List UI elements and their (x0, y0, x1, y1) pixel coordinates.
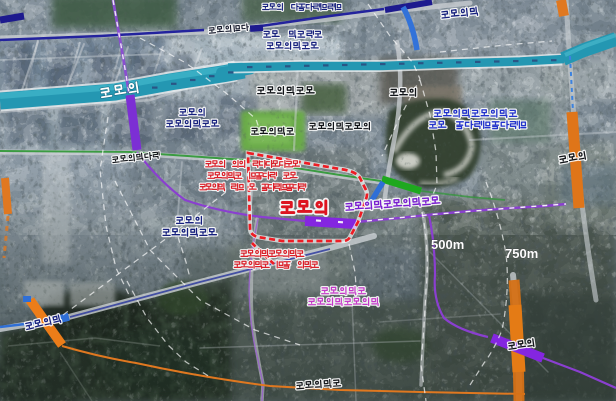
svg-text:500m: 500m (431, 237, 464, 252)
svg-text:750m: 750m (505, 246, 538, 261)
